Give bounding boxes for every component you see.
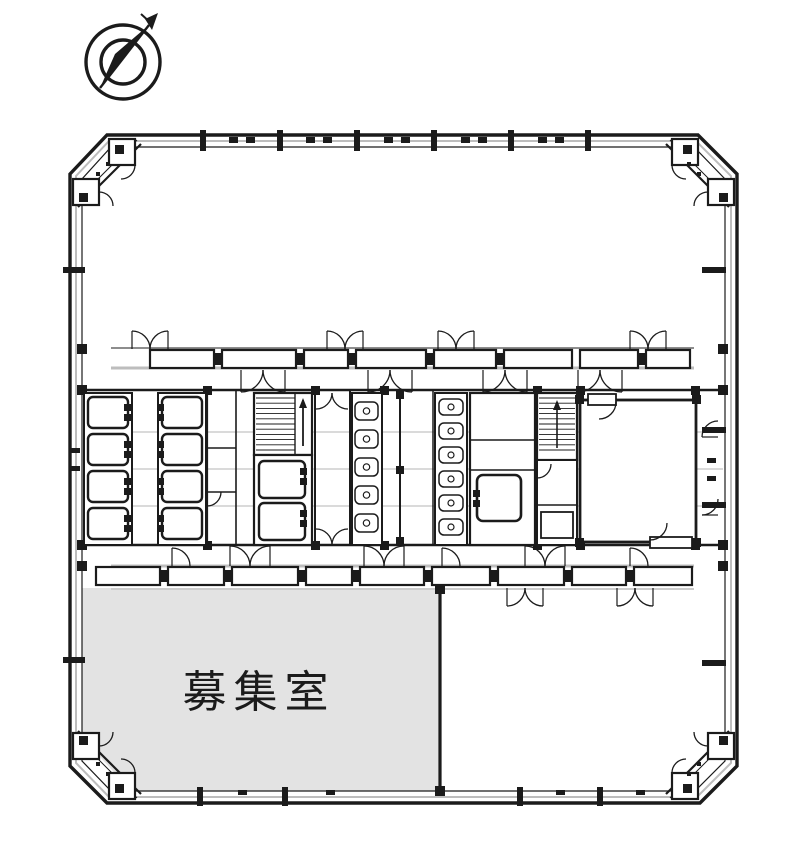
building-core [77,344,728,571]
plan-rect [348,353,356,365]
plan-rect [157,525,164,532]
plan-rect [435,584,445,594]
plan-rect [162,434,202,465]
plan-rect [96,172,100,176]
plan-path [617,588,635,606]
plan-rect [697,762,701,766]
plan-rect [634,567,692,585]
plan-rect [719,193,728,202]
plan-path [132,331,150,349]
plan-path [345,331,363,349]
plan-rect [124,515,131,522]
plan-rect [384,137,393,143]
plan-path [483,370,505,392]
plan-line [100,25,149,88]
plan-path [545,546,565,566]
plan-rect [692,538,701,547]
plan-rect [88,397,128,428]
plan-rect [88,434,128,465]
plan-path [230,546,250,566]
plan-path [630,331,648,349]
plan-rect [556,790,565,795]
plan-rect [200,130,206,151]
plan-rect [702,502,726,508]
plan-rect [691,386,700,395]
plan-rect [300,478,307,485]
plan-rect [96,762,100,766]
plan-rect [683,784,692,793]
plan-rect [555,137,564,143]
plan-rect [157,515,164,522]
plan-rect [718,561,728,571]
plan-rect [707,458,716,463]
plan-rect [79,193,88,202]
plan-rect [439,471,463,487]
plan-rect [162,508,202,539]
plan-rect [259,461,305,498]
plan-rect [588,394,616,405]
plan-path [121,165,135,179]
plan-path [694,732,708,746]
plan-rect [718,385,728,395]
plan-rect [439,447,463,463]
plan-rect [157,451,164,458]
plan-rect [564,570,572,582]
plan-rect [304,350,348,368]
plan-path [672,165,686,179]
plan-rect [79,736,88,745]
plan-rect [224,570,232,582]
plan-path [150,331,168,349]
plan-rect [355,486,378,504]
plan-rect [478,137,487,143]
plan-path [390,370,412,392]
plan-rect [580,350,638,368]
plan-rect [300,468,307,475]
plan-rect [246,137,255,143]
plan-rect [692,395,701,404]
plan-rect [434,350,496,368]
plan-path [172,548,190,566]
floor-plan-drawing: 募集室 [0,0,787,847]
plan-rect [106,772,110,776]
plan-rect [88,508,128,539]
plan-path [332,393,348,409]
plan-rect [702,660,726,666]
plan-rect [638,353,646,365]
plan-rect [396,391,404,399]
plan-rect [63,267,85,273]
plan-rect [439,399,463,415]
plan-rect [424,570,432,582]
plan-rect [697,172,701,176]
plan-rect [71,466,80,471]
plan-rect [124,441,131,448]
plan-rect [160,570,168,582]
plan-rect [197,787,203,806]
compass-icon [86,13,160,99]
plan-rect [360,567,424,585]
plan-rect [439,423,463,439]
plan-rect [538,137,547,143]
plan-rect [490,570,498,582]
plan-rect [352,570,360,582]
plan-rect [150,350,214,368]
plan-rect [687,772,691,776]
plan-rect [597,787,603,806]
plan-path [672,759,686,773]
plan-rect [435,786,445,796]
plan-rect [477,475,521,521]
plan-rect [96,567,160,585]
plan-path [456,331,474,349]
plan-rect [106,162,110,166]
plan-rect [115,145,124,154]
plan-rect [298,570,306,582]
plan-rect [300,520,307,527]
plan-rect [626,570,634,582]
plan-rect [461,137,470,143]
plan-path [327,331,345,349]
plan-rect [168,567,224,585]
plan-rect [124,404,131,411]
plan-circle [86,25,160,99]
plan-rect [63,657,85,663]
floor-plan-page: 募集室 [0,0,787,847]
plan-rect [355,514,378,532]
plan-rect [431,130,437,151]
plan-rect [575,395,584,404]
plan-path [505,370,527,392]
plan-path [648,331,666,349]
plan-rect [124,488,131,495]
plan-rect [702,267,726,273]
plan-rect [508,130,514,151]
plan-path [630,548,648,566]
plan-rect [71,448,80,453]
plan-rect [426,353,434,365]
plan-rect [306,137,315,143]
plan-path [525,588,543,606]
plan-rect [88,471,128,502]
plan-rect [585,130,591,151]
plan-rect [719,736,728,745]
plan-rect [162,397,202,428]
plan-path [99,192,113,206]
plan-rect [282,787,288,806]
plan-rect [636,790,645,795]
plan-rect [473,500,480,507]
plan-rect [575,538,584,547]
plan-rect [572,567,626,585]
plan-path [694,192,708,206]
plan-rect [718,540,728,550]
plan-path [241,370,263,392]
plan-path [600,370,622,392]
plan-rect [238,790,247,795]
plan-rect [157,441,164,448]
plan-rect [683,145,692,154]
plan-rect [157,414,164,421]
plan-rect [300,510,307,517]
plan-rect [124,451,131,458]
plan-rect [401,137,410,143]
plan-rect [396,537,404,545]
plan-rect [355,458,378,476]
plan-path [442,548,460,566]
plan-path [332,529,348,545]
plan-rect [157,488,164,495]
plan-rect [707,476,716,481]
plan-path [250,546,270,566]
plan-rect [517,787,523,806]
plan-rect [306,567,352,585]
plan-path [207,492,221,506]
plan-rect [432,567,490,585]
plan-rect [646,350,690,368]
plan-rect [687,162,691,166]
plan-rect [496,353,504,365]
plan-path [507,588,525,606]
plan-rect [355,402,378,420]
plan-rect [162,471,202,502]
plan-rect [277,130,283,151]
plan-rect [124,478,131,485]
plan-rect [229,137,238,143]
plan-rect [718,344,728,354]
plan-rect [396,466,404,474]
plan-rect [439,495,463,511]
plan-rect [580,400,696,542]
plan-path [635,588,653,606]
plan-path [438,331,456,349]
plan-path [316,393,332,409]
plan-rect [702,427,726,433]
plan-rect [473,490,480,497]
plan-rect [504,350,572,368]
vacant-room-label: 募集室 [183,667,336,718]
plan-rect [124,414,131,421]
plan-rect [323,137,332,143]
plan-rect [222,350,296,368]
plan-rect [326,790,335,795]
plan-rect [157,404,164,411]
plan-rect [115,784,124,793]
plan-path [263,370,285,392]
plan-rect [355,430,378,448]
plan-rect [259,503,305,540]
plan-rect [356,350,426,368]
plan-rect [232,567,298,585]
plan-rect [124,525,131,532]
plan-rect [541,512,573,538]
plan-rect [157,478,164,485]
plan-rect [354,130,360,151]
plan-rect [214,353,222,365]
plan-rect [296,353,304,365]
plan-rect [498,567,564,585]
plan-rect [439,519,463,535]
